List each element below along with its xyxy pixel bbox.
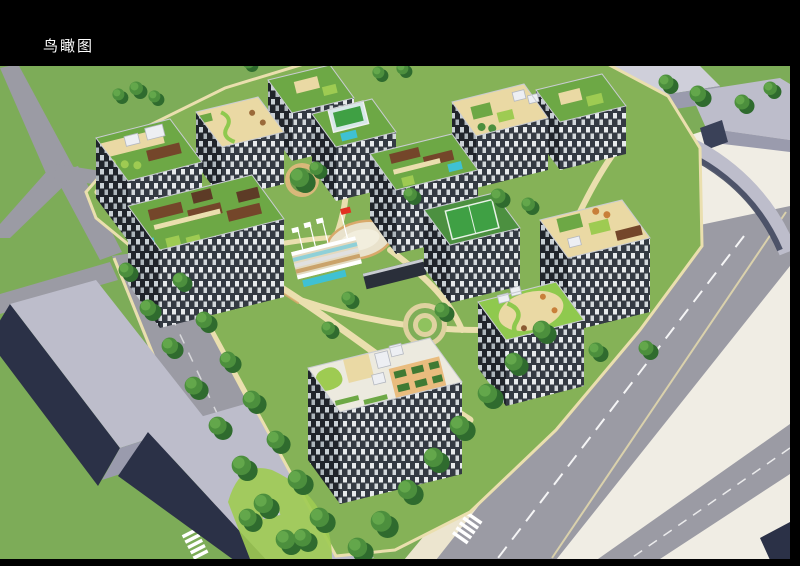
site-building-northeast (536, 74, 626, 170)
letterbox-top (0, 0, 800, 66)
site-building-soccer-roof (424, 193, 520, 303)
letterbox-right (790, 0, 800, 566)
page-title: 鸟瞰图 (43, 37, 94, 55)
letterbox-bottom (0, 559, 800, 566)
aerial-render-page: 鸟瞰图 (0, 0, 800, 566)
aerial-view-render: 鸟瞰图 (0, 0, 800, 566)
